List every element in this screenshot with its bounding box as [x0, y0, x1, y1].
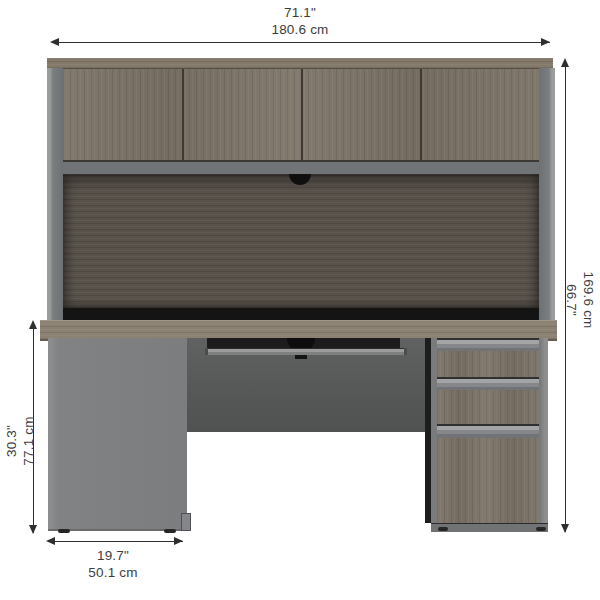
pedestal-width-cm: 50.1 cm [63, 564, 163, 581]
arrow-right-icon [174, 537, 183, 545]
pedestal-width-inches: 19.7" [63, 547, 163, 564]
desk-height-label: 30.3" 77.1 cm [0, 391, 40, 491]
keyboard-tray-handle-clip [295, 355, 307, 359]
left-pedestal-glide [181, 513, 191, 531]
hutch-door-gap [420, 69, 422, 161]
hutch-right-post [539, 68, 555, 320]
hutch-door-gap [182, 69, 184, 161]
arrow-up-icon [29, 320, 37, 329]
drawer-pull-rail [437, 338, 539, 351]
pedestal-foot [438, 527, 448, 531]
pedestal-width-dimension-line [48, 541, 183, 542]
hutch-left-post [47, 68, 63, 320]
overall-width-inches: 71.1" [250, 4, 350, 21]
left-pedestal-panel [48, 338, 187, 531]
arrow-down-icon [29, 525, 37, 534]
arrow-right-icon [541, 38, 550, 46]
overall-height-label: 66.7" 169.6 cm [560, 250, 600, 350]
drawer-front-file [437, 438, 539, 523]
arrow-up-icon [561, 58, 569, 67]
keyboard-tray-front-bar [205, 348, 407, 355]
drawer-pedestal [431, 338, 548, 531]
left-pedestal-foot [164, 529, 176, 533]
overall-width-dimension-line [52, 42, 550, 43]
left-pedestal-foot [58, 529, 70, 533]
drawer-front-top [437, 351, 539, 378]
hutch-back-panel [63, 174, 539, 308]
pedestal-base [431, 523, 548, 532]
pedestal-width-label: 19.7" 50.1 cm [63, 547, 163, 581]
drawer-pull-rail [437, 424, 539, 438]
drawer-pull-rail [437, 377, 539, 390]
hutch-shadow-strip [63, 308, 539, 320]
overall-height-cm: 169.6 cm [580, 250, 597, 350]
pedestal-foot [536, 527, 546, 531]
arrow-left-icon [50, 38, 59, 46]
arrow-left-icon [46, 537, 55, 545]
overall-height-inches: 66.7" [563, 250, 580, 350]
hutch-doors-row [63, 68, 539, 161]
desk-height-cm: 77.1 cm [20, 391, 37, 491]
arrow-down-icon [561, 524, 569, 533]
pedestal-right-edge [539, 338, 548, 523]
desk-height-inches: 30.3" [3, 391, 20, 491]
hutch-door-gap [301, 69, 303, 161]
product-dimension-diagram: 71.1" 180.6 cm 66.7" 169.6 cm 30.3" 77.1… [0, 0, 600, 600]
overall-width-label: 71.1" 180.6 cm [250, 4, 350, 38]
drawer-front-middle [437, 390, 539, 425]
overall-width-cm: 180.6 cm [250, 21, 350, 38]
